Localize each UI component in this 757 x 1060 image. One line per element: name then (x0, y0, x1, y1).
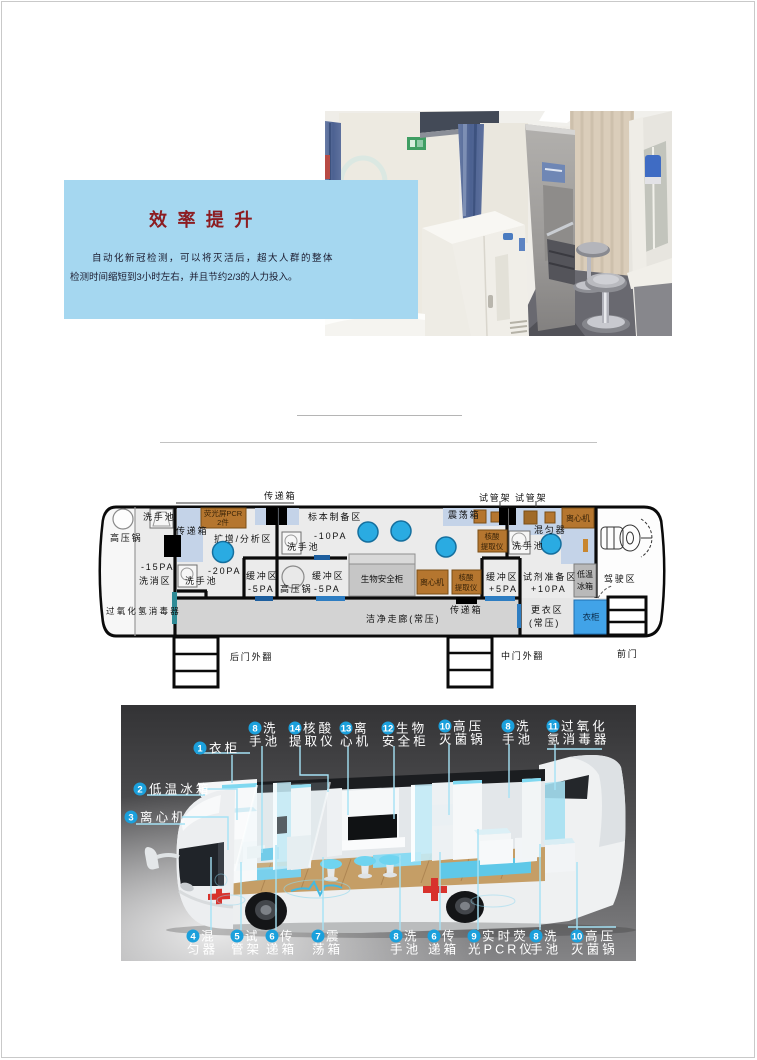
svg-text:灭菌锅: 灭菌锅 (439, 732, 486, 747)
svg-text:高压: 高压 (453, 719, 484, 734)
svg-text:扩增/分析区: 扩增/分析区 (214, 533, 272, 544)
svg-text:混匀器: 混匀器 (534, 524, 566, 535)
svg-text:洗: 洗 (404, 930, 420, 944)
svg-text:安全柜: 安全柜 (382, 734, 429, 749)
svg-text:荧光屏PCR: 荧光屏PCR (204, 508, 243, 518)
svg-text:缓冲区: 缓冲区 (246, 570, 278, 581)
svg-text:中门外翻: 中门外翻 (501, 650, 544, 661)
svg-text:6: 6 (431, 932, 436, 943)
svg-text:-10PA: -10PA (314, 531, 347, 541)
svg-text:缓冲区: 缓冲区 (312, 570, 344, 581)
svg-text:衣柜: 衣柜 (582, 612, 600, 622)
svg-text:缓冲区: 缓冲区 (486, 571, 518, 582)
svg-text:洗: 洗 (263, 722, 279, 736)
svg-text:生物: 生物 (396, 722, 427, 736)
svg-text:-15PA: -15PA (141, 562, 174, 572)
svg-text:11: 11 (548, 722, 559, 733)
svg-text:12: 12 (383, 724, 394, 735)
svg-text:10: 10 (440, 722, 451, 733)
svg-text:震: 震 (326, 930, 342, 944)
svg-text:6: 6 (269, 932, 274, 943)
svg-text:14: 14 (290, 724, 301, 735)
svg-text:高压锅: 高压锅 (280, 583, 312, 594)
svg-text:试管架: 试管架 (479, 492, 511, 503)
svg-text:-5PA: -5PA (248, 584, 275, 594)
svg-text:后门外翻: 后门外翻 (230, 651, 273, 662)
svg-text:洗手池: 洗手池 (512, 540, 544, 551)
svg-text:+10PA: +10PA (531, 584, 567, 594)
svg-text:8: 8 (252, 724, 257, 735)
svg-text:递箱: 递箱 (266, 942, 297, 957)
svg-text:1: 1 (197, 744, 203, 755)
svg-text:高压: 高压 (585, 929, 616, 944)
svg-text:传递箱: 传递箱 (264, 490, 296, 501)
svg-text:灭菌锅: 灭菌锅 (571, 942, 618, 957)
svg-text:衣柜: 衣柜 (209, 741, 240, 756)
svg-text:洗手池: 洗手池 (287, 541, 319, 552)
svg-text:离心机: 离心机 (140, 810, 187, 825)
svg-text:心机: 心机 (340, 735, 371, 749)
svg-text:光PCR仪: 光PCR仪 (468, 943, 535, 957)
svg-text:离心机: 离心机 (420, 577, 444, 587)
svg-text:标本制备区: 标本制备区 (308, 511, 362, 522)
svg-text:2件: 2件 (217, 517, 229, 527)
svg-text:传: 传 (280, 929, 296, 944)
svg-text:试剂准备区: 试剂准备区 (523, 571, 577, 582)
svg-text:离心机: 离心机 (566, 513, 590, 523)
svg-text:洁净走廊(常压): 洁净走廊(常压) (366, 613, 440, 624)
svg-text:洗: 洗 (544, 930, 560, 944)
svg-text:过氧化氢消毒器: 过氧化氢消毒器 (106, 606, 181, 616)
svg-text:试管架: 试管架 (515, 492, 547, 503)
svg-text:-5PA: -5PA (314, 584, 341, 594)
svg-text:-20PA: -20PA (208, 566, 241, 576)
svg-text:洗手池: 洗手池 (143, 511, 175, 522)
svg-text:10: 10 (572, 932, 583, 943)
svg-text:核酸: 核酸 (303, 721, 334, 736)
svg-text:+5PA: +5PA (489, 584, 518, 594)
svg-text:手池: 手池 (390, 943, 421, 957)
svg-text:管架: 管架 (231, 942, 262, 957)
svg-text:核酸: 核酸 (459, 572, 474, 582)
svg-text:提取仪: 提取仪 (481, 541, 504, 551)
svg-text:洗消区: 洗消区 (139, 575, 171, 586)
svg-text:更衣区: 更衣区 (531, 604, 563, 615)
svg-text:过氧化: 过氧化 (561, 720, 608, 734)
svg-text:荡箱: 荡箱 (312, 942, 343, 957)
svg-text:离: 离 (354, 721, 370, 736)
svg-text:低温: 低温 (577, 569, 593, 579)
svg-text:手池: 手池 (530, 943, 561, 957)
svg-text:3: 3 (128, 813, 133, 824)
svg-text:手池: 手池 (502, 733, 533, 747)
svg-text:洗手池: 洗手池 (185, 575, 217, 586)
svg-text:驾驶区: 驾驶区 (604, 573, 636, 584)
svg-text:9: 9 (471, 932, 476, 943)
svg-text:核酸: 核酸 (485, 531, 500, 541)
svg-text:冰箱: 冰箱 (577, 581, 593, 591)
svg-text:传递箱: 传递箱 (450, 604, 482, 615)
svg-text:递箱: 递箱 (428, 942, 459, 957)
svg-text:前门: 前门 (617, 648, 639, 659)
svg-text:实时荧: 实时荧 (482, 929, 529, 944)
svg-text:传: 传 (442, 929, 458, 944)
svg-text:传递箱: 传递箱 (176, 525, 208, 536)
svg-text:4: 4 (190, 932, 196, 943)
svg-text:手池: 手池 (249, 735, 280, 749)
svg-text:高压锅: 高压锅 (110, 532, 142, 543)
svg-text:生物安全柜: 生物安全柜 (361, 574, 404, 584)
svg-text:试: 试 (245, 929, 261, 944)
svg-text:提取仪: 提取仪 (289, 734, 336, 749)
svg-text:低温冰箱: 低温冰箱 (149, 782, 212, 797)
svg-text:8: 8 (393, 932, 398, 943)
svg-text:氢消毒器: 氢消毒器 (547, 732, 610, 747)
svg-text:混: 混 (201, 930, 217, 944)
svg-text:8: 8 (505, 722, 510, 733)
svg-text:2: 2 (137, 785, 142, 796)
svg-text:匀器: 匀器 (187, 943, 218, 957)
svg-text:洗: 洗 (516, 720, 532, 734)
svg-text:13: 13 (341, 724, 352, 735)
svg-text:震荡箱: 震荡箱 (448, 509, 480, 520)
svg-text:7: 7 (315, 932, 320, 943)
svg-text:8: 8 (533, 932, 538, 943)
svg-text:5: 5 (234, 932, 240, 943)
svg-text:提取仪: 提取仪 (455, 582, 478, 592)
svg-text:(常压): (常压) (529, 617, 560, 628)
